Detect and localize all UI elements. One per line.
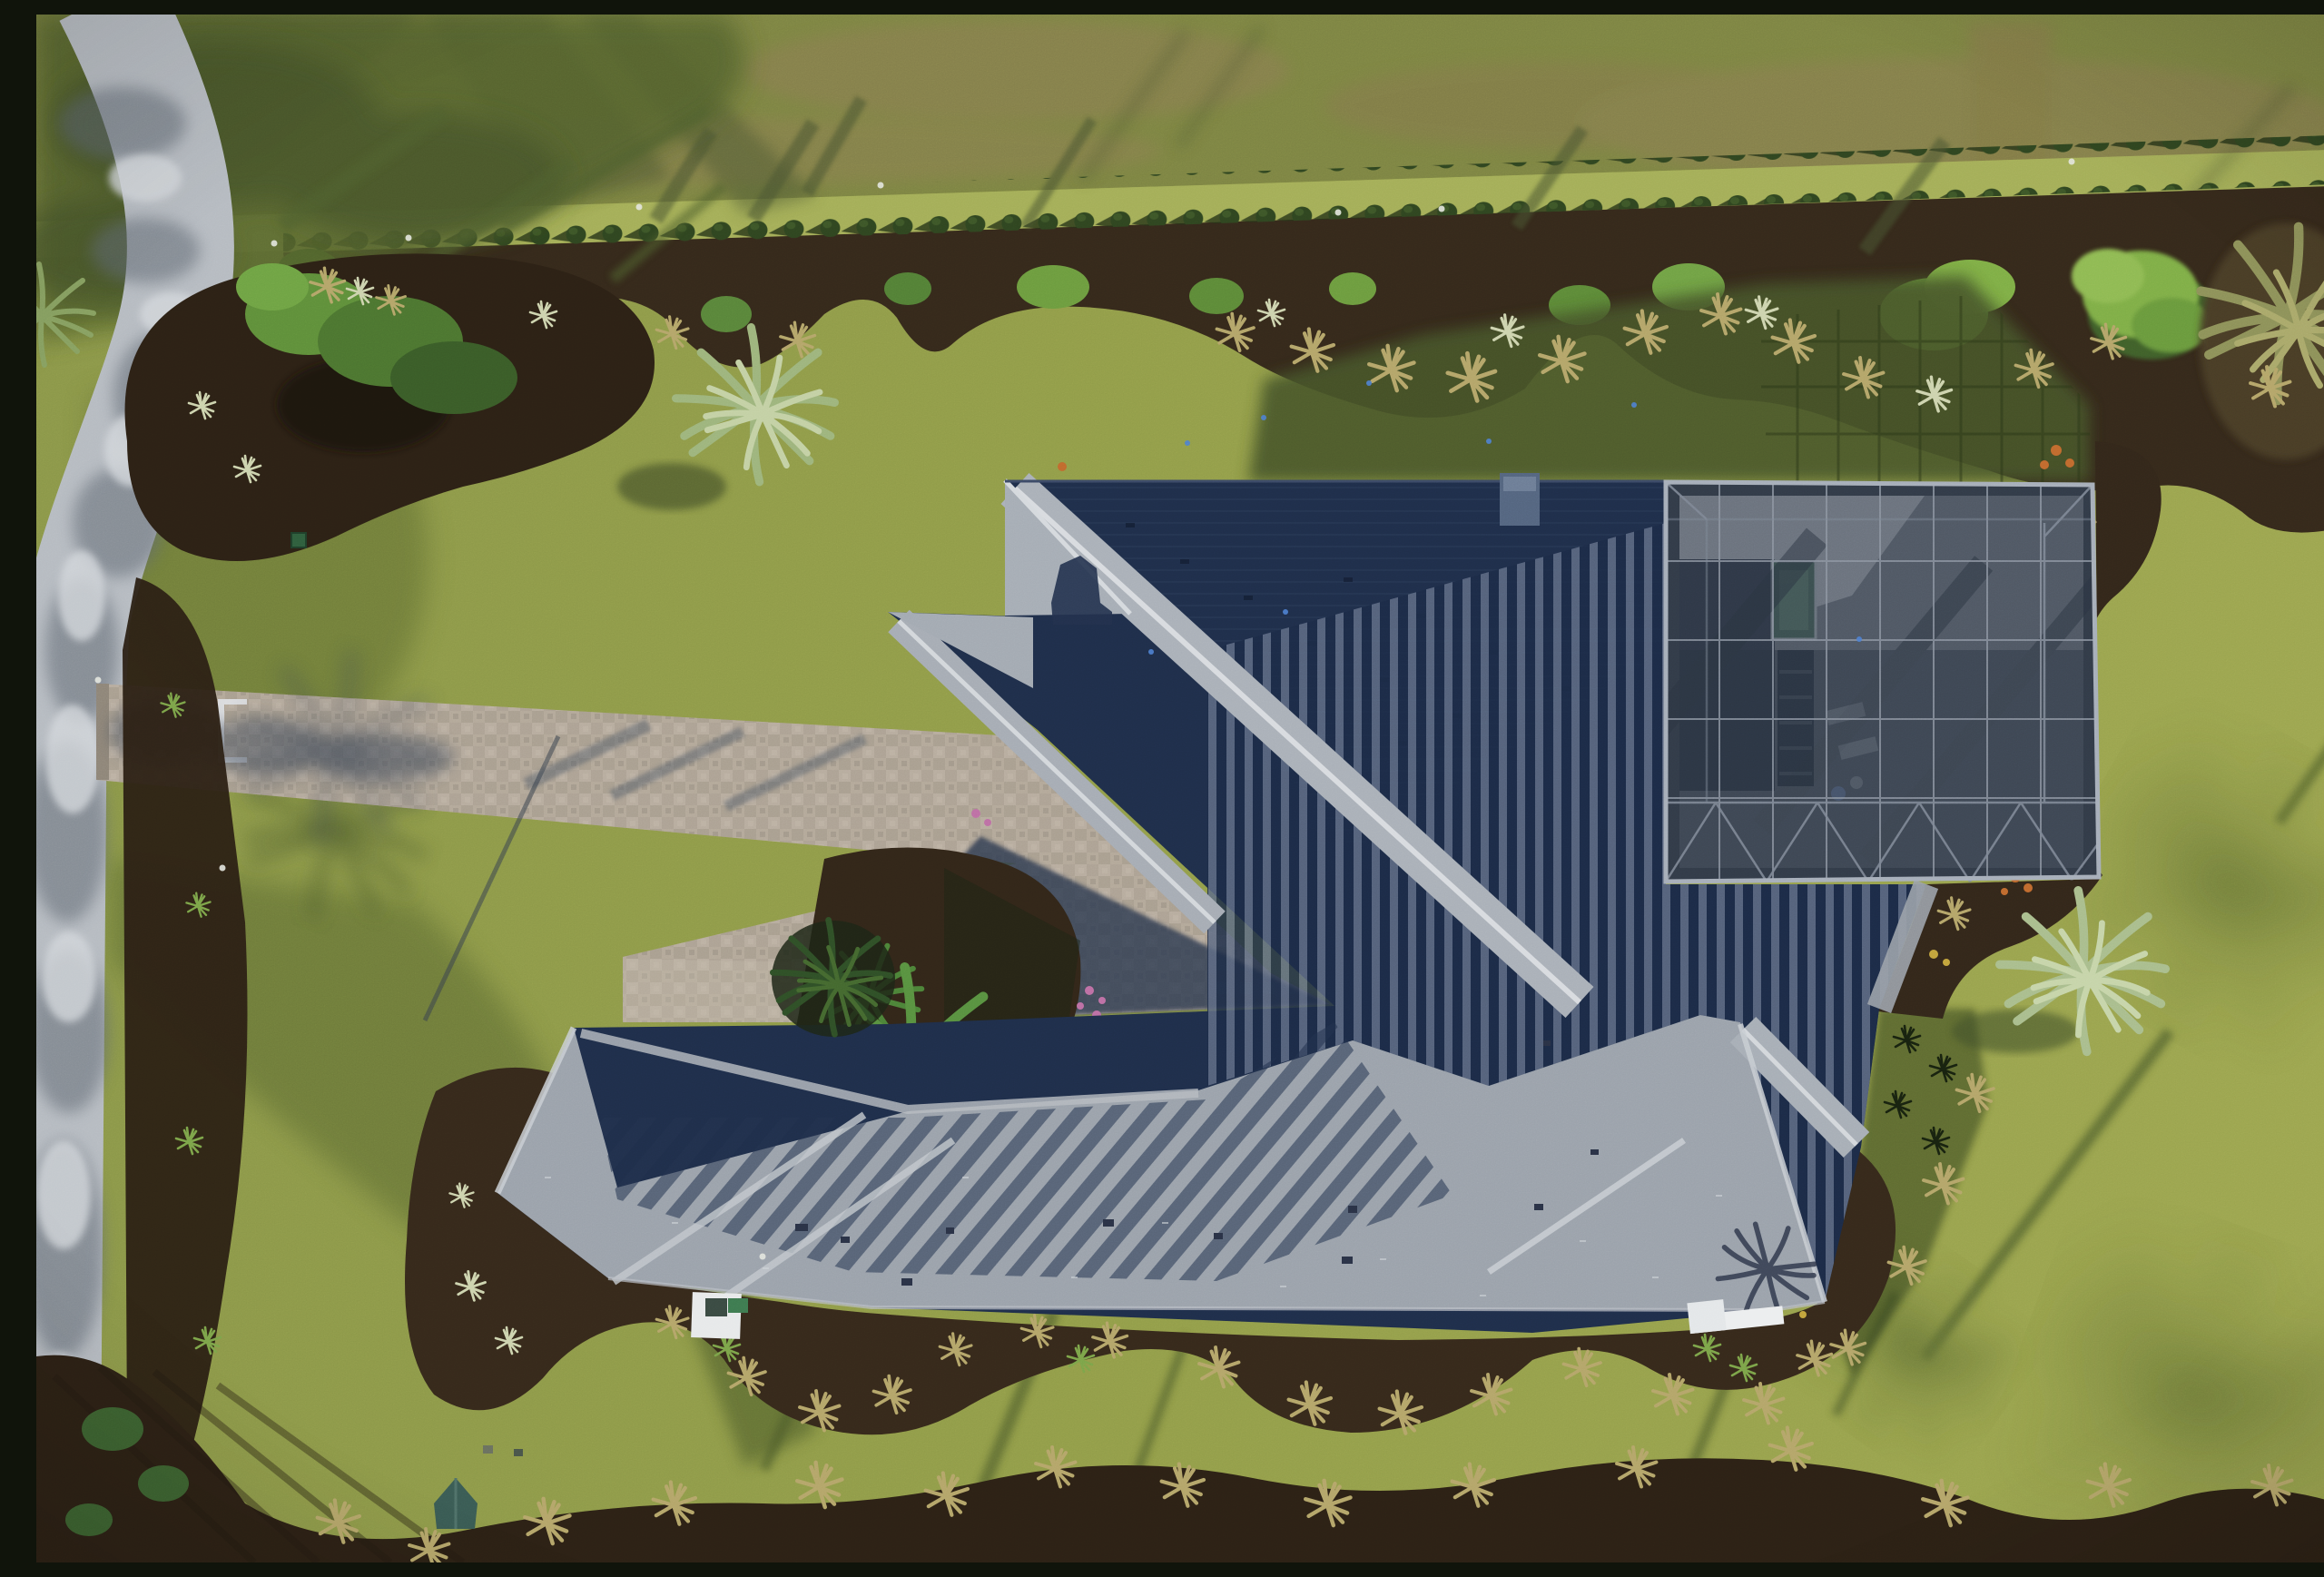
aerial-photo: Top-down aerial drone photo of a newly l… <box>36 15 2324 1562</box>
vignette <box>36 15 2324 1562</box>
aerial-photo-canvas <box>36 15 2324 1562</box>
